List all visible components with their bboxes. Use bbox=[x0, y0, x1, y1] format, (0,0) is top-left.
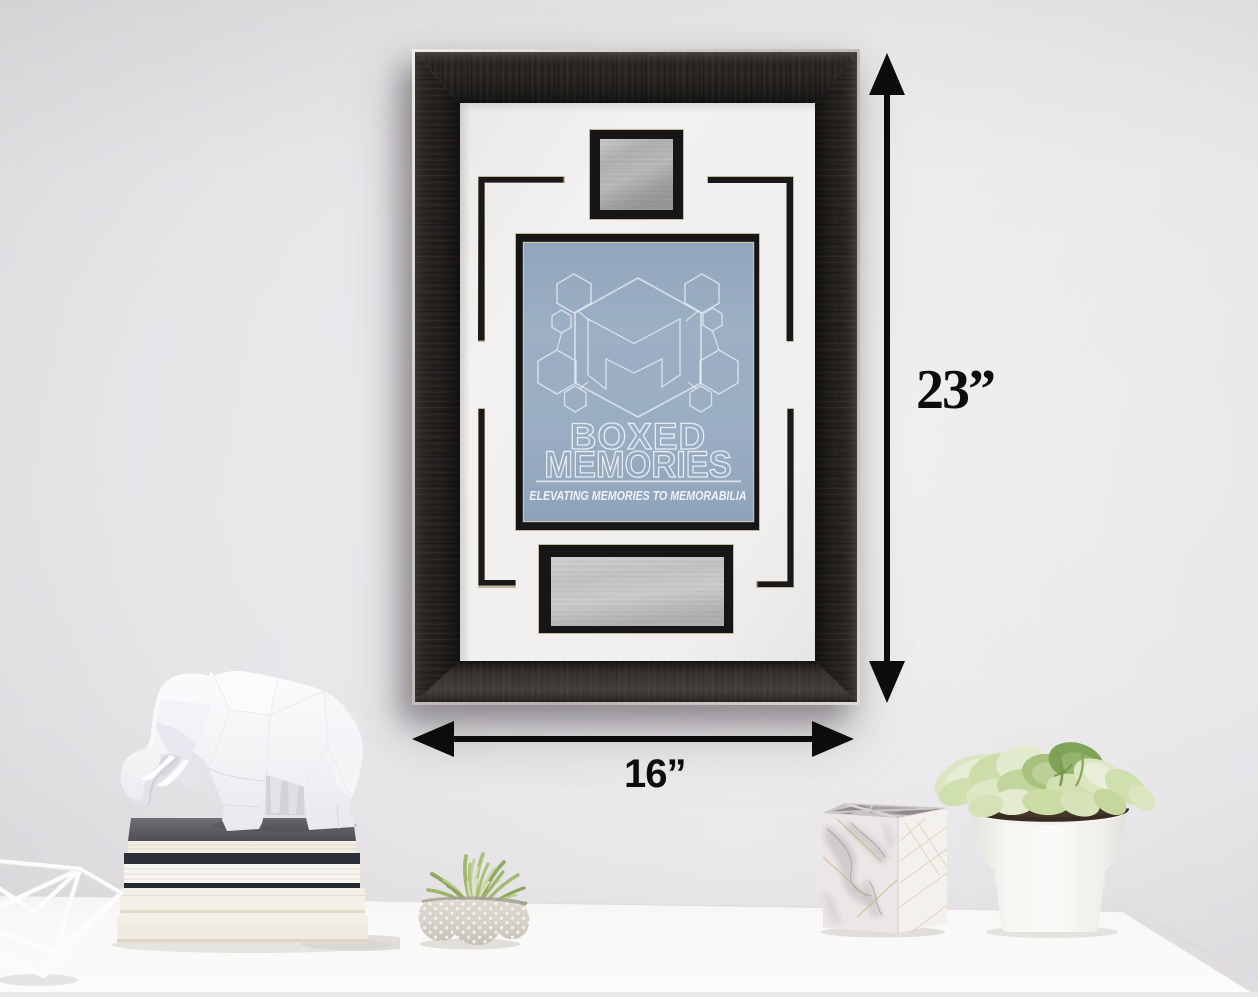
svg-text:MEMORIES: MEMORIES bbox=[544, 444, 731, 485]
svg-text:ELEVATING MEMORIES TO MEMORABI: ELEVATING MEMORIES TO MEMORABILIA bbox=[529, 488, 746, 503]
